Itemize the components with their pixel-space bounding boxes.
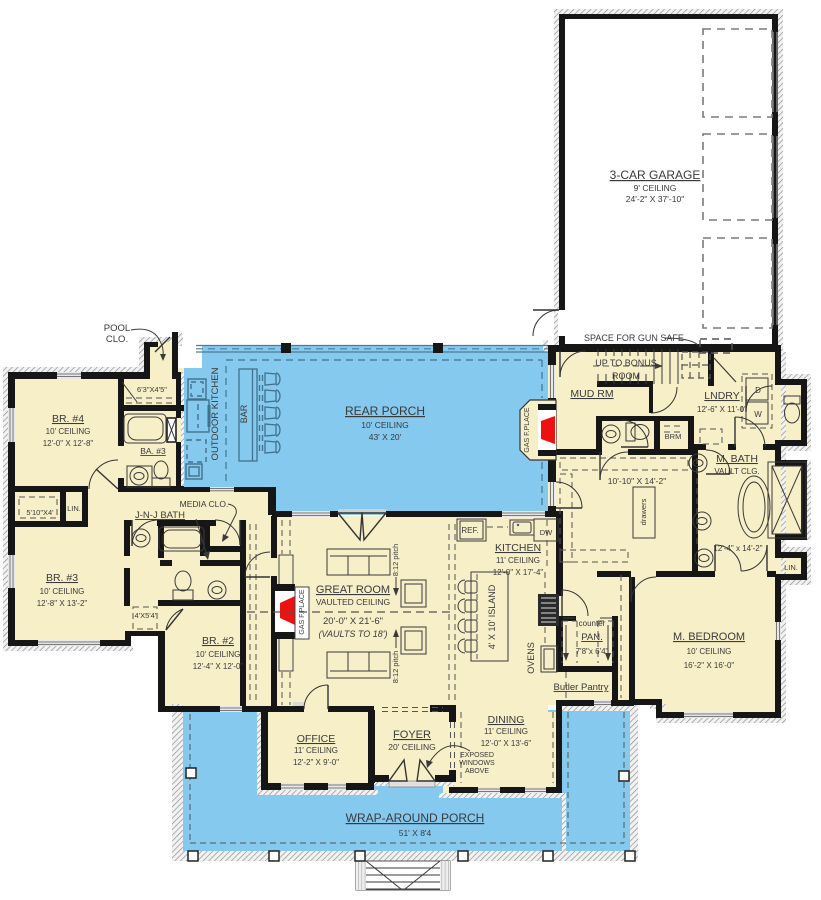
svg-text:drawers: drawers (639, 498, 648, 525)
svg-text:BR. #4: BR. #4 (52, 413, 84, 425)
svg-text:6'3"X4'5": 6'3"X4'5" (137, 385, 167, 394)
svg-text:10' CEILING: 10' CEILING (361, 420, 408, 430)
svg-text:VAULTED CEILING: VAULTED CEILING (316, 597, 390, 607)
svg-text:8:12 pitch: 8:12 pitch (391, 544, 400, 577)
svg-text:ABOVE: ABOVE (465, 768, 489, 775)
svg-text:BA. #3: BA. #3 (140, 446, 166, 456)
svg-text:(VAULTS TO 18'): (VAULTS TO 18') (319, 629, 388, 639)
svg-text:GAS F.PLACE: GAS F.PLACE (299, 589, 306, 634)
svg-text:12'-6" X 11'-0": 12'-6" X 11'-0" (697, 405, 747, 414)
svg-text:10' CEILING: 10' CEILING (196, 650, 241, 659)
svg-text:12'-0" X 13'-6": 12'-0" X 13'-6" (481, 739, 532, 748)
svg-text:BRM: BRM (665, 432, 682, 441)
svg-text:12'-4" X 12'-0": 12'-4" X 12'-0" (193, 662, 244, 671)
svg-text:W: W (754, 410, 762, 419)
svg-text:10'-10" X 14'-2": 10'-10" X 14'-2" (608, 476, 666, 486)
svg-text:REF.: REF. (461, 526, 478, 535)
svg-text:43' X 20': 43' X 20' (369, 432, 402, 442)
svg-text:12'-4" x 14'-2": 12'-4" x 14'-2" (713, 544, 762, 553)
svg-text:EXPOSED: EXPOSED (460, 752, 494, 759)
svg-text:16'-2" X 16'-0": 16'-2" X 16'-0" (684, 661, 735, 670)
svg-text:LNDRY: LNDRY (704, 390, 739, 402)
svg-text:REAR PORCH: REAR PORCH (345, 404, 425, 418)
svg-text:BAR: BAR (239, 404, 249, 423)
svg-text:5'10"X4': 5'10"X4' (26, 508, 54, 517)
svg-text:BR. #2: BR. #2 (202, 635, 234, 647)
svg-text:J-N-J BATH: J-N-J BATH (135, 510, 185, 521)
svg-text:11' CEILING: 11' CEILING (496, 556, 540, 565)
svg-text:D: D (755, 386, 761, 395)
svg-text:4'X5'4": 4'X5'4" (134, 611, 157, 620)
svg-text:MUD RM: MUD RM (570, 388, 613, 400)
svg-text:8:12 pitch: 8:12 pitch (391, 651, 400, 684)
svg-text:51' X 8'4: 51' X 8'4 (399, 828, 432, 838)
svg-text:11' CEILING: 11' CEILING (484, 727, 528, 736)
svg-text:MEDIA CLO.: MEDIA CLO. (180, 499, 229, 509)
svg-text:FOYER: FOYER (393, 729, 431, 741)
svg-text:BR. #3: BR. #3 (46, 572, 78, 584)
svg-text:UP TO BONUS: UP TO BONUS (595, 358, 657, 368)
svg-text:POOL: POOL (104, 323, 130, 334)
svg-text:20' CEILING: 20' CEILING (388, 742, 435, 752)
svg-text:VAULT CLG.: VAULT CLG. (714, 467, 759, 476)
svg-text:9' CEILING: 9' CEILING (634, 183, 677, 193)
svg-text:WRAP-AROUND PORCH: WRAP-AROUND PORCH (346, 811, 485, 825)
svg-text:7'8"x 6'4": 7'8"x 6'4" (576, 647, 609, 656)
svg-text:10' CEILING: 10' CEILING (40, 587, 85, 596)
svg-text:DW: DW (540, 528, 553, 537)
svg-text:ROOM: ROOM (612, 371, 640, 381)
svg-text:4' X 10' ISLAND: 4' X 10' ISLAND (487, 584, 497, 649)
svg-text:OFFICE: OFFICE (297, 733, 336, 745)
svg-text:12'-8" X 13'-2": 12'-8" X 13'-2" (37, 599, 88, 608)
svg-text:LIN.: LIN. (784, 563, 798, 572)
svg-text:GAS F.PLACE: GAS F.PLACE (524, 407, 531, 452)
svg-text:PAN.: PAN. (581, 632, 602, 643)
svg-text:OVENS: OVENS (526, 642, 536, 674)
svg-text:20'-0" X 21'-6": 20'-0" X 21'-6" (323, 616, 383, 627)
svg-text:GREAT ROOM: GREAT ROOM (316, 584, 390, 596)
svg-text:3-CAR GARAGE: 3-CAR GARAGE (610, 168, 701, 182)
svg-text:LIN.: LIN. (67, 504, 81, 513)
svg-text:SPACE FOR GUN SAFE: SPACE FOR GUN SAFE (584, 333, 684, 343)
svg-text:10' CEILING: 10' CEILING (687, 647, 732, 656)
svg-text:12'-0" X 17'-4": 12'-0" X 17'-4" (493, 568, 544, 577)
svg-text:Butler Pantry: Butler Pantry (554, 682, 609, 693)
svg-text:WINDOWS: WINDOWS (459, 760, 495, 767)
svg-text:KITCHEN: KITCHEN (495, 542, 541, 554)
svg-text:M. BEDROOM: M. BEDROOM (673, 631, 745, 643)
svg-text:10' CEILING: 10' CEILING (46, 427, 91, 436)
svg-text:12'-2" X 9'-0": 12'-2" X 9'-0" (293, 758, 339, 767)
svg-text:counter: counter (579, 619, 606, 628)
svg-text:11' CEILING: 11' CEILING (294, 746, 338, 755)
svg-text:M. BATH: M. BATH (716, 453, 758, 465)
svg-text:12'-0" X 12'-8": 12'-0" X 12'-8" (43, 439, 94, 448)
svg-text:OUTDOOR KITCHEN: OUTDOOR KITCHEN (210, 367, 221, 460)
svg-text:DINING: DINING (488, 714, 525, 726)
svg-text:24'-2" X 37'-10": 24'-2" X 37'-10" (626, 194, 684, 204)
svg-text:CLO.: CLO. (106, 334, 128, 345)
